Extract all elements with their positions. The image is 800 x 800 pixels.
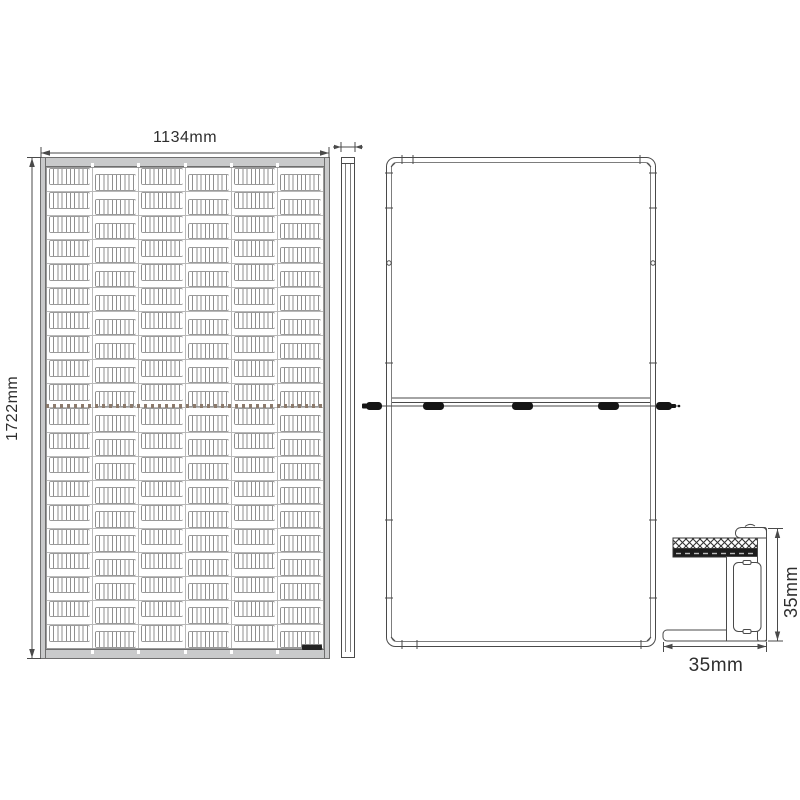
junction-box xyxy=(512,402,533,410)
junction-box xyxy=(598,402,619,410)
frame-notch xyxy=(230,650,233,654)
solar-panel-technical-drawing: 1134mm 1722mm 35mm 35mm xyxy=(0,0,800,800)
side-thickness-dimension xyxy=(333,142,363,152)
junction-box xyxy=(423,402,444,410)
half-cell-divider-line xyxy=(46,404,324,408)
nameplate-label xyxy=(302,644,322,650)
frame-notch xyxy=(137,650,140,654)
frame-notch xyxy=(91,650,94,654)
drawing-linework xyxy=(0,0,800,800)
laminate-layers xyxy=(673,538,758,557)
side-view xyxy=(333,142,363,658)
frame-notch xyxy=(276,650,279,654)
front-width-dimension xyxy=(41,147,329,158)
frame-notch xyxy=(91,163,94,167)
mc4-connector-left xyxy=(362,402,382,410)
frame-section-view xyxy=(663,524,783,652)
section-width-dimension xyxy=(664,642,767,652)
section-height-dimension xyxy=(768,529,783,642)
back-view xyxy=(362,155,680,649)
frame-notch xyxy=(276,163,279,167)
frame-notch xyxy=(184,163,187,167)
frame-notch xyxy=(184,650,187,654)
frame-notch xyxy=(137,163,140,167)
frame-notch xyxy=(230,163,233,167)
front-height-dimension xyxy=(27,158,41,659)
